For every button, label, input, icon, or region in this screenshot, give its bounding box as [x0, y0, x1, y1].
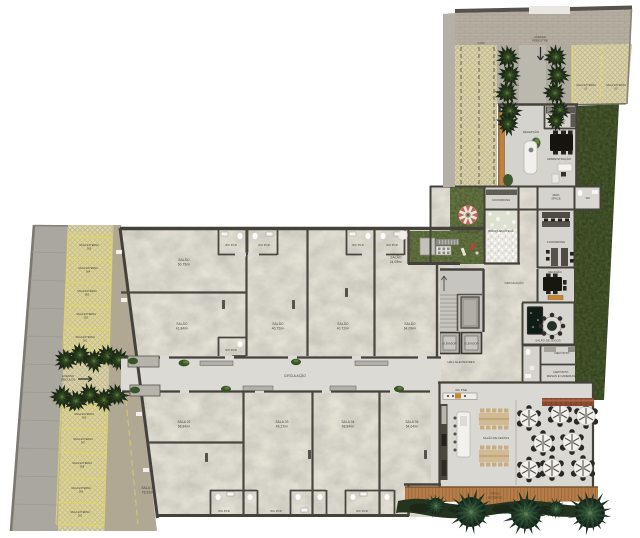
svg-text:COWORKING: COWORKING: [492, 198, 511, 202]
svg-text:CIRCULAÇÃO: CIRCULAÇÃO: [284, 373, 306, 378]
svg-text:MESAS E CADEIRAS: MESAS E CADEIRAS: [547, 374, 576, 378]
svg-text:40,72m²: 40,72m²: [337, 327, 349, 331]
svg-text:SALÃO: SALÃO: [337, 321, 349, 326]
svg-text:BRINQUEDOTECA: BRINQUEDOTECA: [488, 229, 513, 233]
svg-text:SALÃO DE FESTAS: SALÃO DE FESTAS: [483, 435, 509, 440]
svg-text:SALÃO DE JOGOS: SALÃO DE JOGOS: [535, 338, 560, 343]
svg-text:DEPÓSITO: DEPÓSITO: [555, 350, 571, 355]
svg-text:006: 006: [82, 415, 87, 419]
svg-text:SALÃO: SALÃO: [176, 321, 188, 326]
svg-text:64,09m²: 64,09m²: [404, 327, 416, 331]
svg-text:WC PCD: WC PCD: [225, 243, 237, 247]
svg-text:GUIA: GUIA: [477, 41, 484, 45]
svg-text:SALÃO: SALÃO: [404, 321, 416, 326]
svg-text:ELEVADOR: ELEVADOR: [443, 342, 457, 346]
svg-text:SALA 04: SALA 04: [341, 420, 354, 424]
svg-text:007: 007: [81, 440, 86, 444]
svg-text:005: 005: [87, 246, 92, 250]
svg-text:ELEVADOR: ELEVADOR: [465, 342, 479, 346]
svg-text:RECEPÇÃO: RECEPÇÃO: [523, 129, 540, 134]
svg-text:PEDESTRE: PEDESTRE: [532, 39, 548, 43]
svg-text:VAGA EXTERNA: VAGA EXTERNA: [72, 461, 92, 465]
svg-text:60,75m²: 60,75m²: [178, 263, 190, 267]
svg-text:SALÃO: SALÃO: [272, 321, 284, 326]
svg-text:HALL ELEVADORES: HALL ELEVADORES: [447, 360, 474, 364]
svg-text:VAGA EXTERNA: VAGA EXTERNA: [79, 243, 99, 247]
svg-text:SPACE: SPACE: [551, 197, 561, 201]
svg-text:VAGA EXTERNA: VAGA EXTERNA: [70, 510, 90, 514]
svg-text:49,17m²: 49,17m²: [276, 425, 288, 429]
svg-text:COWORKING: COWORKING: [547, 240, 566, 244]
svg-text:40,72m²: 40,72m²: [272, 327, 284, 331]
svg-text:VAGA EXTERNA: VAGA EXTERNA: [73, 437, 93, 441]
svg-text:002: 002: [84, 315, 89, 319]
svg-text:009: 009: [79, 489, 84, 493]
svg-text:SALÃO: SALÃO: [178, 257, 190, 262]
svg-text:010: 010: [78, 513, 83, 517]
svg-text:SALÃO: SALÃO: [390, 255, 402, 260]
svg-text:75,93m²: 75,93m²: [142, 491, 154, 495]
svg-text:VAGA EXTERNA: VAGA EXTERNA: [77, 289, 97, 293]
svg-text:VAGA EXTERNA: VAGA EXTERNA: [78, 266, 98, 270]
svg-text:CIRCULAÇÃO: CIRCULAÇÃO: [505, 280, 525, 285]
svg-text:48,84m²: 48,84m²: [342, 425, 354, 429]
svg-text:WC PCD: WC PCD: [218, 509, 230, 513]
svg-text:SALA 05: SALA 05: [405, 420, 418, 424]
svg-text:WC PNE: WC PNE: [455, 388, 467, 392]
svg-text:WC PCD: WC PCD: [352, 243, 364, 247]
svg-text:EXTERNO: EXTERNO: [488, 496, 503, 500]
svg-text:REUNIÃO: REUNIÃO: [548, 269, 562, 274]
svg-text:008: 008: [80, 464, 85, 468]
svg-text:VAGA EXTERNA: VAGA EXTERNA: [71, 486, 91, 490]
svg-text:WC PCD: WC PCD: [225, 348, 237, 352]
svg-text:SALA 03: SALA 03: [275, 420, 288, 424]
svg-text:VAGA EXTERNA: VAGA EXTERNA: [74, 412, 94, 416]
svg-text:VAGA EXTERNA: VAGA EXTERNA: [606, 83, 626, 87]
svg-text:PLAYGROUND: PLAYGROUND: [458, 230, 478, 234]
svg-text:VAGA EXTERNA: VAGA EXTERNA: [576, 83, 596, 87]
svg-text:SALA 02: SALA 02: [177, 420, 190, 424]
svg-text:VAGA EXTERNA: VAGA EXTERNA: [75, 335, 95, 339]
svg-text:VEÍCULOS: VEÍCULOS: [61, 378, 76, 382]
svg-text:004: 004: [86, 269, 91, 273]
svg-text:001: 001: [83, 338, 88, 342]
svg-text:64,64m²: 64,64m²: [406, 425, 418, 429]
svg-text:24,09m²: 24,09m²: [390, 260, 402, 264]
svg-text:003: 003: [85, 292, 90, 296]
svg-text:ADMINISTRAÇÃO: ADMINISTRAÇÃO: [547, 156, 572, 161]
svg-text:WC: WC: [586, 196, 591, 200]
svg-text:41,84m²: 41,84m²: [176, 327, 188, 331]
svg-text:WC PCD: WC PCD: [258, 243, 270, 247]
svg-text:VAGA EXTERNA: VAGA EXTERNA: [76, 312, 96, 316]
svg-text:WC PCD: WC PCD: [270, 509, 282, 513]
svg-text:SALA 01: SALA 01: [141, 486, 154, 490]
svg-text:68,84m²: 68,84m²: [178, 425, 190, 429]
svg-text:WC PCD: WC PCD: [386, 243, 398, 247]
svg-text:WC PCD: WC PCD: [356, 509, 368, 513]
